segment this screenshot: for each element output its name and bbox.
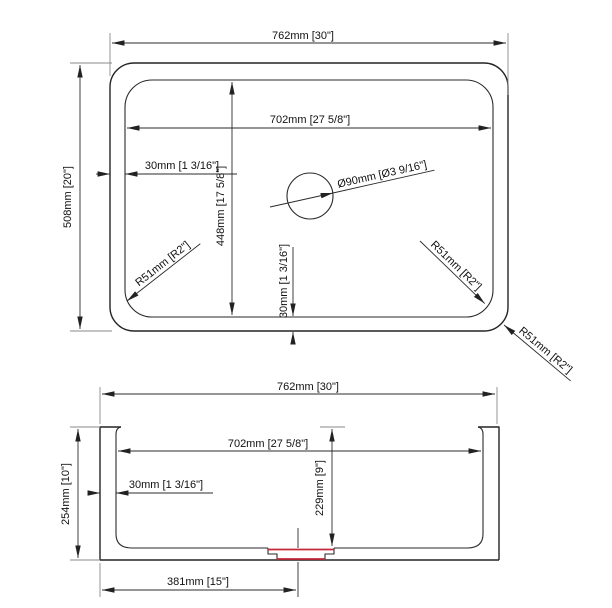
- front-view: 762mm [30"] 702mm [27 5/8"] 254mm [10"] …: [60, 381, 499, 597]
- dim-label-top-bowl-width: 702mm [27 5/8"]: [270, 114, 350, 126]
- dim-front-bowl-depth: 229mm [9"]: [314, 429, 332, 546]
- top-view: 762mm [30"] 508mm [20"] 702mm [27 5/8"] …: [62, 30, 579, 381]
- dim-radius-bottom-right: R51mm [R2"]: [420, 232, 494, 304]
- dim-label-radius-bottom-left: R51mm [R2"]: [133, 239, 192, 289]
- dim-top-rim-offset-bottom: 30mm [1 3/16"]: [278, 244, 293, 344]
- dim-label-top-bowl-depth: 448mm [17 5/8"]: [215, 166, 227, 246]
- drawing-canvas: 762mm [30"] 508mm [20"] 702mm [27 5/8"] …: [0, 0, 612, 608]
- dim-label-radius-outer: R51mm [R2"]: [516, 325, 574, 376]
- dim-label-radius-bottom-right: R51mm [R2"]: [428, 239, 484, 293]
- dim-label-top-rim-offset-bottom: 30mm [1 3/16"]: [278, 244, 290, 318]
- dim-label-top-overall-width: 762mm [30"]: [272, 30, 334, 42]
- sink-technical-drawing: 762mm [30"] 508mm [20"] 702mm [27 5/8"] …: [0, 0, 612, 608]
- dim-label-front-drain-offset: 381mm [15"]: [167, 576, 229, 588]
- dim-front-bowl-width: 702mm [27 5/8"]: [118, 438, 481, 451]
- dim-top-bowl-depth: 448mm [17 5/8"]: [215, 82, 232, 315]
- dim-radius-bottom-left: R51mm [R2"]: [119, 233, 200, 301]
- dim-top-bowl-width: 702mm [27 5/8"]: [127, 114, 491, 128]
- dim-label-top-overall-depth: 508mm [20"]: [62, 166, 74, 228]
- dim-top-overall-width: 762mm [30"]: [112, 30, 506, 43]
- dim-front-overall-width: 762mm [30"]: [102, 381, 495, 394]
- dim-label-front-overall-height: 254mm [10"]: [60, 463, 72, 525]
- dim-front-wall-thickness: 30mm [1 3/16"]: [90, 479, 213, 493]
- dim-drain-diameter: Ø90mm [Ø3 9/16"]: [270, 157, 434, 207]
- dim-label-top-rim-offset-left: 30mm [1 3/16"]: [145, 160, 219, 172]
- dim-label-front-overall-width: 762mm [30"]: [277, 381, 339, 393]
- dim-label-front-wall-thickness: 30mm [1 3/16"]: [129, 479, 203, 491]
- dim-label-front-bowl-width: 702mm [27 5/8"]: [228, 438, 308, 450]
- dim-top-rim-offset-left: 30mm [1 3/16"]: [96, 160, 237, 174]
- drain-circle: [287, 173, 333, 219]
- dim-front-overall-height: 254mm [10"]: [60, 429, 78, 558]
- dim-radius-outer: R51mm [R2"]: [504, 315, 579, 381]
- dim-front-drain-offset: 381mm [15"]: [102, 576, 296, 590]
- top-view-outer-outline: [110, 63, 508, 331]
- dim-top-overall-depth: 508mm [20"]: [62, 65, 80, 329]
- dim-label-front-bowl-depth: 229mm [9"]: [314, 460, 326, 516]
